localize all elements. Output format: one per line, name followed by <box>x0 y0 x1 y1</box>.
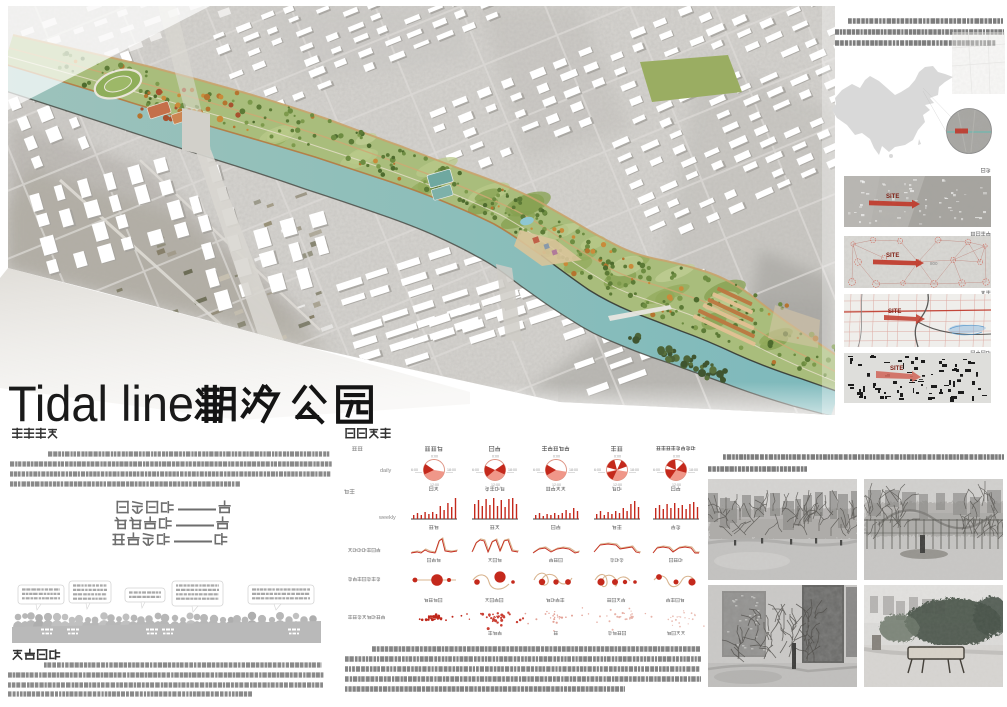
svg-text:0:00: 0:00 <box>614 455 621 459</box>
svg-text:18:00: 18:00 <box>569 468 578 472</box>
svg-text:SITE: SITE <box>888 309 901 315</box>
svg-text:800: 800 <box>930 261 938 266</box>
svg-text:18:00: 18:00 <box>508 468 517 472</box>
svg-text:12:00: 12:00 <box>613 483 622 487</box>
svg-text:SITE: SITE <box>890 366 903 372</box>
svg-text:weekly: weekly <box>378 515 396 521</box>
svg-text:daily: daily <box>380 468 392 474</box>
svg-text:6:00: 6:00 <box>533 468 540 472</box>
svg-text:0:00: 0:00 <box>553 455 560 459</box>
svg-text:0:00: 0:00 <box>431 455 438 459</box>
svg-text:12:00: 12:00 <box>552 483 561 487</box>
svg-text:18:00: 18:00 <box>630 468 639 472</box>
svg-text:6:00: 6:00 <box>653 468 660 472</box>
svg-text:6:00: 6:00 <box>411 468 418 472</box>
svg-text:12:00: 12:00 <box>672 483 681 487</box>
svg-text:12:00: 12:00 <box>491 483 500 487</box>
svg-text:18:00: 18:00 <box>447 468 456 472</box>
svg-text:0:00: 0:00 <box>673 455 680 459</box>
svg-text:6:00: 6:00 <box>594 468 601 472</box>
svg-text:0:00: 0:00 <box>492 455 499 459</box>
svg-text:SITE: SITE <box>886 194 899 200</box>
svg-text:Tidal line: Tidal line <box>8 376 194 432</box>
svg-text:6:00: 6:00 <box>472 468 479 472</box>
svg-text:SITE: SITE <box>886 253 899 259</box>
svg-text:18:00: 18:00 <box>689 468 698 472</box>
svg-text:12:00: 12:00 <box>430 483 439 487</box>
